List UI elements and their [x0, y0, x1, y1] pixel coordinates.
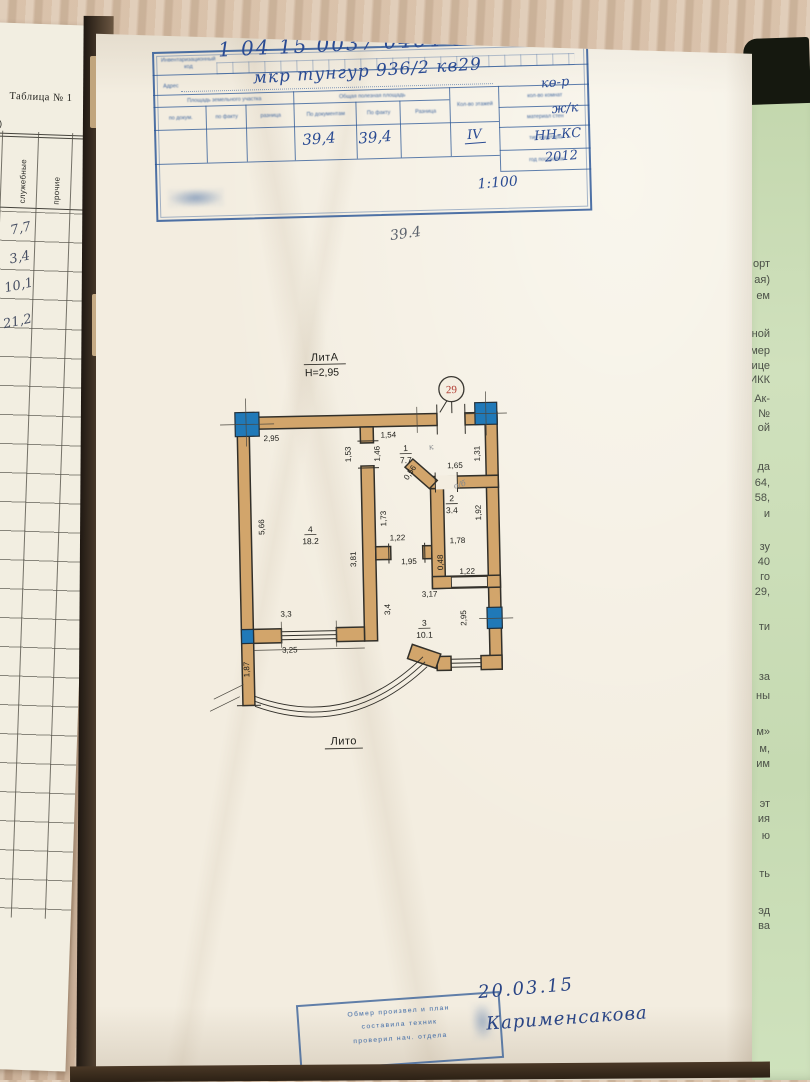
- registration-stamp: Инвентаризационный код Адрес Площадь зем…: [152, 41, 592, 222]
- plan-dim: 3,25: [282, 645, 298, 654]
- plan-dim: 1,22: [459, 567, 475, 576]
- plan-room: 1: [403, 443, 408, 453]
- plan-dim: 0,48: [436, 554, 445, 570]
- balcony-arcs: [254, 657, 428, 719]
- scale-value: 1:100: [477, 173, 518, 192]
- left-col-header: служебные: [18, 159, 29, 204]
- plan-dim: 1,22: [390, 533, 406, 542]
- code-label: Инвентаризационный код: [156, 53, 221, 75]
- col-header-floors: Кол-во этажей: [449, 86, 501, 124]
- plan-dim: 2,95: [459, 610, 468, 626]
- plan-dim: 1,78: [450, 536, 466, 545]
- plan-room: 3.4: [446, 505, 458, 515]
- left-partial-text: м.): [0, 118, 2, 128]
- plan-room: 10.1: [416, 630, 433, 640]
- plan-dim: 3,17: [422, 589, 438, 598]
- plan-dim: 1,46: [373, 445, 382, 461]
- plan-underline: [325, 748, 363, 749]
- plan-unit: 29: [446, 384, 458, 396]
- plan-litera: Лито: [330, 735, 357, 748]
- bottom-stamp: Обмер произвел и плансоставила техникпро…: [296, 991, 504, 1072]
- plan-room: 3: [422, 618, 427, 628]
- side-value-wall-material: ж/к: [551, 100, 579, 117]
- plan-dim: 3,3: [280, 610, 292, 619]
- floors-value: IV: [464, 127, 486, 145]
- floor-plan-svg: 2,951,541,531,461,651,310,561,921,781,73…: [191, 344, 540, 781]
- stamp-smudge: [168, 188, 224, 207]
- plan-room: 18.2: [302, 536, 319, 546]
- area-by-fact: 39,4: [358, 127, 393, 148]
- plan-dim: 1,31: [473, 445, 482, 461]
- pencil-area-note: 39.4: [389, 224, 422, 244]
- plan-dim: 1,65: [447, 461, 463, 470]
- side-value-year: 2012: [544, 148, 578, 166]
- plan-pencil: к: [428, 442, 435, 452]
- plan-dim: 3,81: [349, 551, 358, 567]
- floor-plan: 2,951,541,531,461,651,310,561,921,781,73…: [191, 344, 540, 781]
- left-table-title: Таблица № 1: [9, 91, 72, 104]
- left-col-header: прочие: [52, 177, 62, 205]
- plan-dim: 1,53: [344, 446, 353, 462]
- photo-of-technical-passport: { "left_page": { "table_title": "Таблица…: [0, 0, 810, 1080]
- side-value-rooms: кө-р: [540, 74, 569, 91]
- plan-dim: 1,54: [380, 430, 396, 439]
- plan-litera2: Н=2,95: [305, 366, 340, 379]
- green-page: ортая)емноймерицеИККАк-№ойда64,58,изу40г…: [742, 66, 810, 1080]
- plan-walls: [237, 412, 503, 705]
- bottom-stamp-lines: Обмер произвел и плансоставила техникпро…: [298, 998, 500, 1052]
- plan-dim: 1,95: [401, 557, 417, 566]
- main-page: Инвентаризационный код Адрес Площадь зем…: [96, 20, 752, 1080]
- plan-room: 4: [308, 524, 313, 534]
- signature-date: 20.03.15: [477, 974, 575, 1003]
- book-cover-corner: [743, 37, 810, 105]
- plan-dim: 2,95: [263, 434, 279, 443]
- plan-dim: 1,87: [242, 661, 251, 677]
- plan-dim: 3,4: [383, 603, 392, 615]
- signature-name: Карименсакова: [485, 1002, 648, 1034]
- plan-dim: 1,73: [379, 510, 388, 526]
- plan-room: 7.7: [400, 455, 412, 465]
- area-by-documents: 39,4: [302, 128, 337, 149]
- plan-litera: ЛитА: [311, 352, 339, 365]
- plan-dim: 5,66: [257, 519, 266, 535]
- plan-room: 2: [449, 493, 454, 503]
- plan-dim: 1,92: [474, 504, 483, 520]
